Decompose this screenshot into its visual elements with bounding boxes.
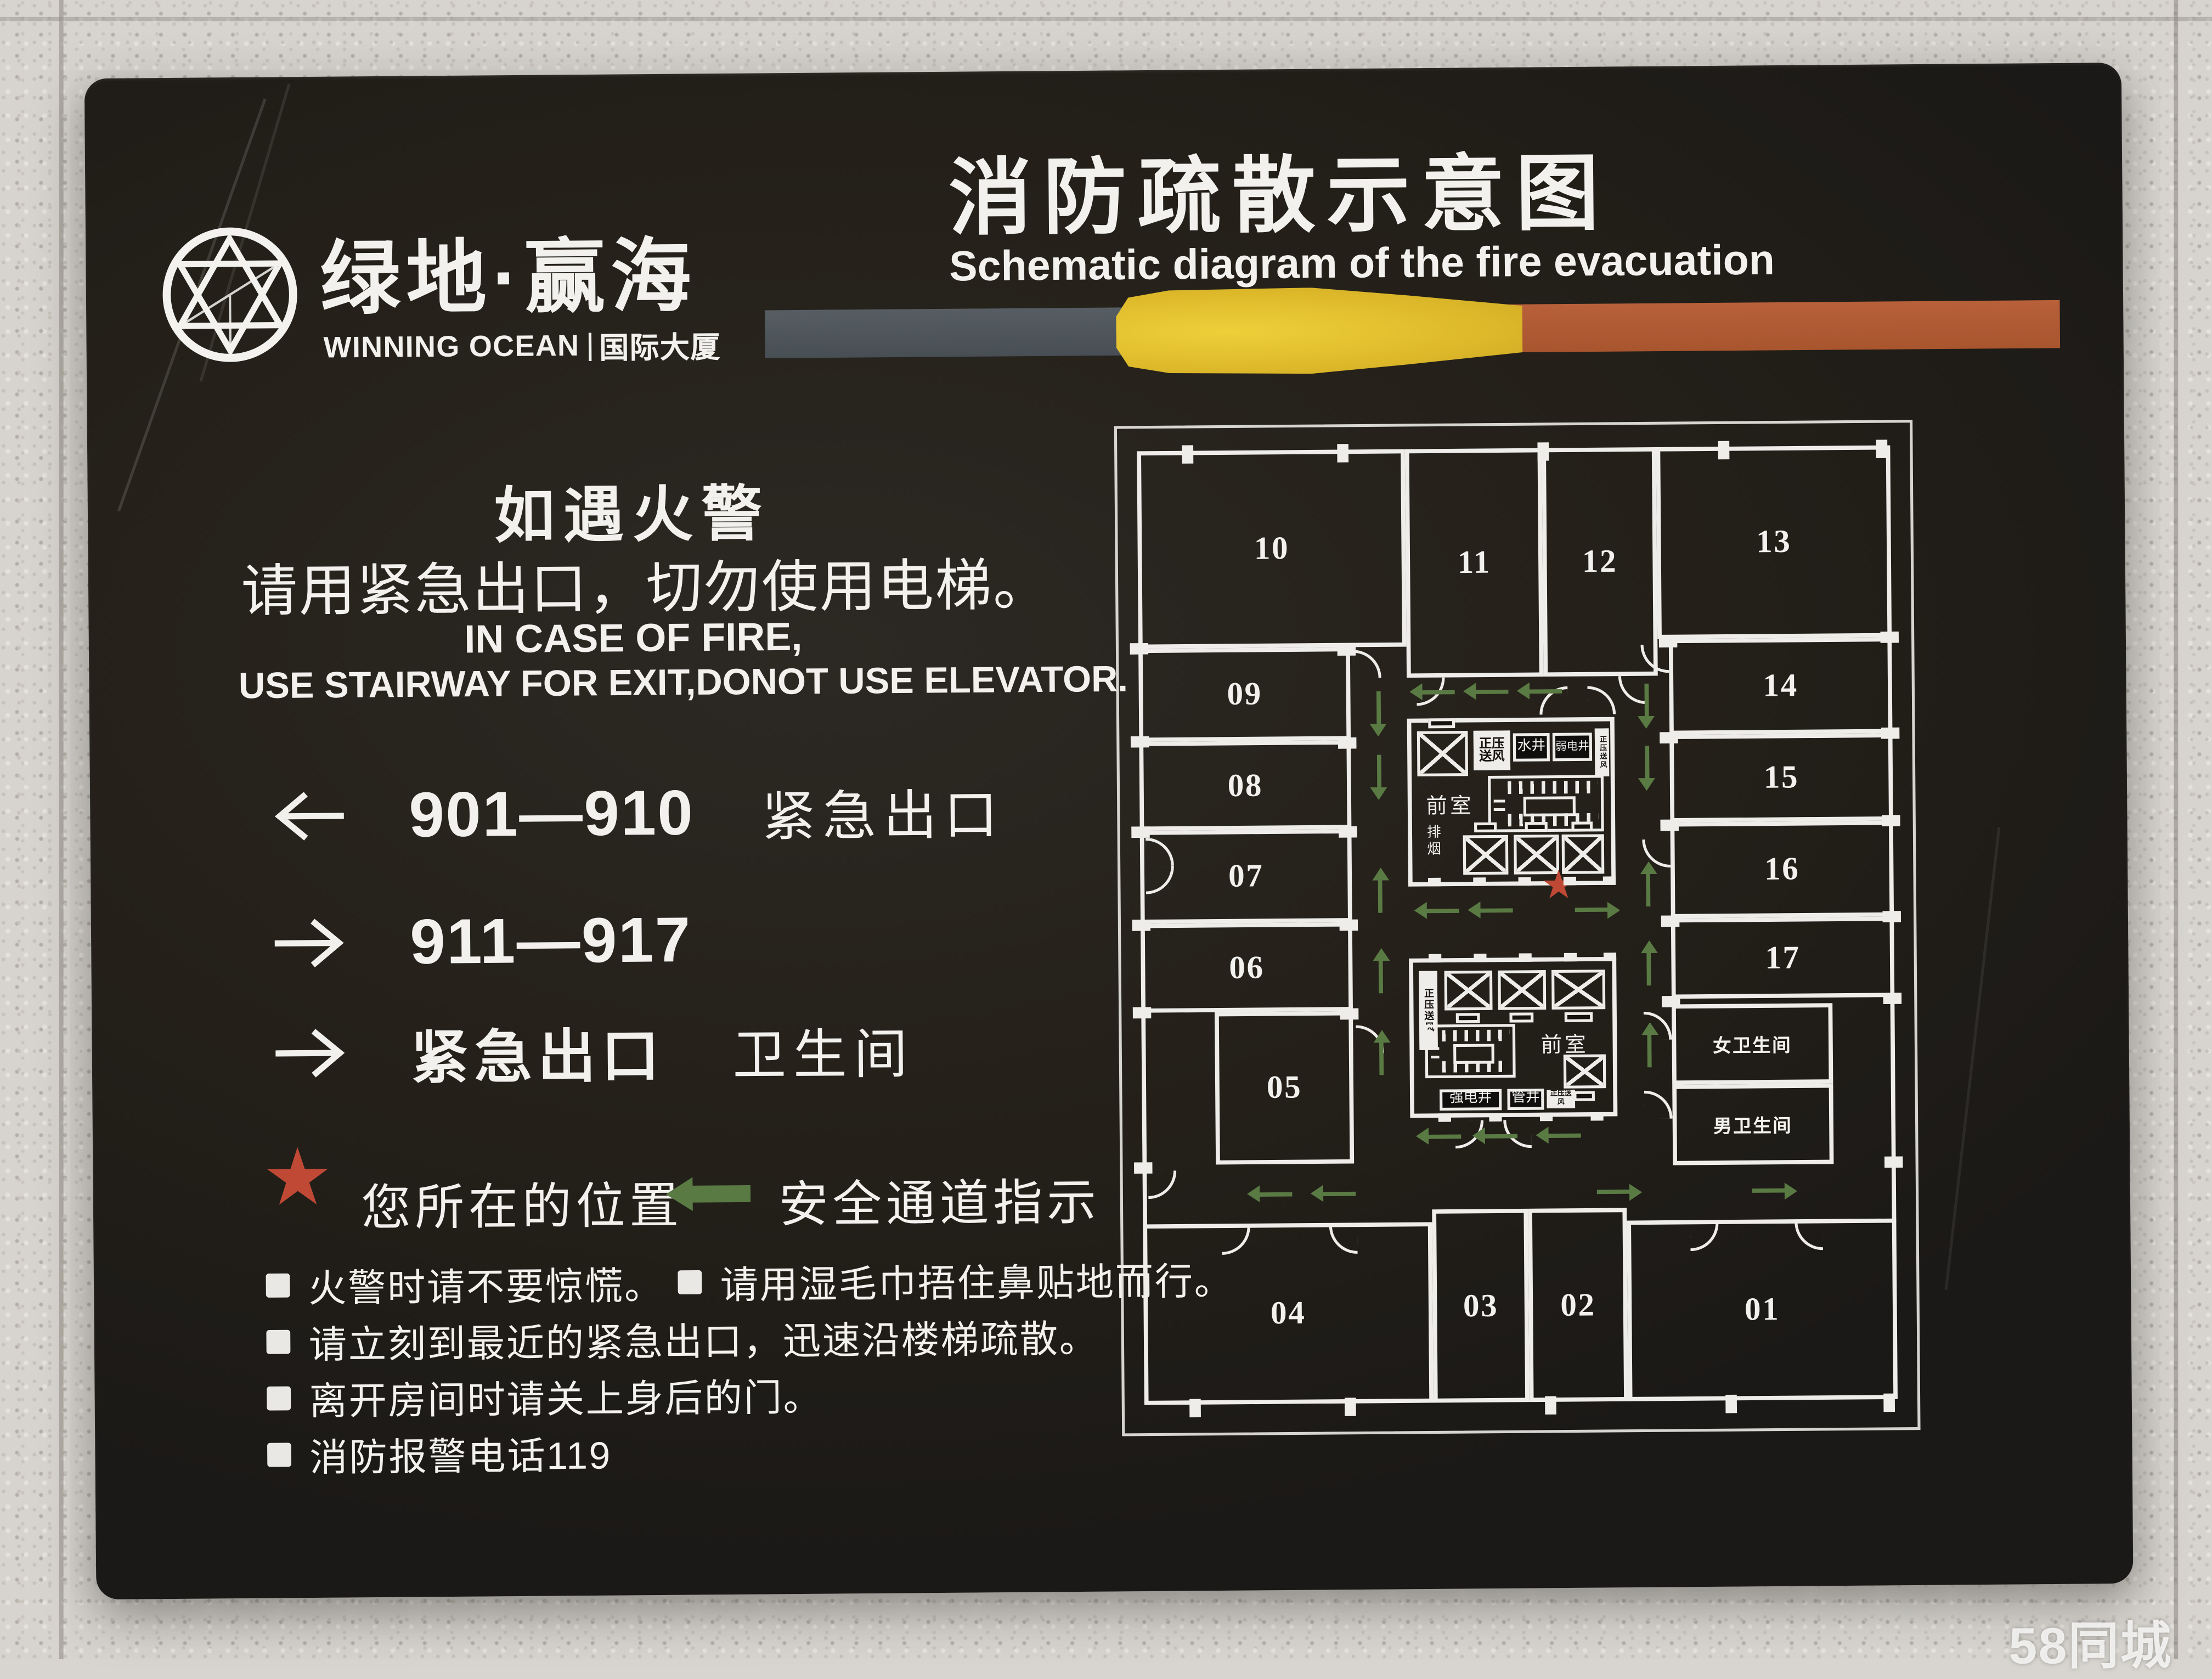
room-wc-men: 男卫生间 — [1672, 1084, 1833, 1165]
sign-title-cn: 消防疏散示意图 — [948, 126, 1611, 251]
column-marker — [1660, 732, 1678, 743]
column-marker — [1660, 820, 1679, 831]
room-number: 02 — [1560, 1287, 1596, 1323]
column-marker — [1661, 915, 1680, 927]
door-frame-tab — [1590, 1112, 1603, 1121]
column-marker — [1882, 815, 1900, 826]
column-marker — [1345, 1398, 1356, 1416]
route-arrow-icon — [1475, 690, 1509, 694]
column-marker — [1130, 643, 1149, 655]
elevator-icon — [1444, 971, 1493, 1011]
fire-notice: 如遇火警 请用紧急出口，切勿使用电梯。 IN CASE OF FIRE, USE… — [253, 71, 1004, 77]
you-are-here-label: 您所在的位置 — [361, 1166, 683, 1241]
room-04: 04 — [1143, 1222, 1434, 1405]
route-arrow-icon — [1376, 691, 1381, 725]
route-arrow-icon — [1646, 872, 1650, 906]
column-marker — [1882, 911, 1901, 922]
wc-label: 卫生间 — [732, 1010, 915, 1089]
route-arrow-icon — [1421, 690, 1455, 695]
room-number: 04 — [1271, 1295, 1306, 1332]
column-marker — [1876, 440, 1888, 458]
safety-tips: 火警时请不要惊慌。 请用湿毛巾捂住鼻贴地而行。 请立刻到最近的紧急出口，迅速沿楼… — [266, 1249, 1249, 1482]
route-arrow-icon — [1646, 951, 1651, 985]
photo-background: 绿地·赢海 WINNING OCEAN 国际大厦 消防疏散示意图 Schemat… — [0, 0, 2212, 1659]
pressure-air-label: 正压送风 — [1474, 730, 1510, 770]
door-frame-tab — [1519, 877, 1531, 886]
room-range: 901—910 — [409, 776, 695, 852]
direction-row-901-910: 901—910 紧急出口 — [268, 771, 1005, 854]
logo-divider — [588, 333, 591, 361]
direction-row-911-917: 911—917 — [269, 903, 760, 981]
room-number: 16 — [1764, 851, 1800, 888]
column-marker — [1339, 826, 1357, 838]
column-marker — [1338, 737, 1357, 749]
stairway-icon — [1425, 1024, 1515, 1078]
room-05: 05 — [1215, 1011, 1354, 1165]
column-marker — [1131, 826, 1150, 838]
service-core-upper: 正压送风 水井 弱电井 正压送风 前室 排烟 — [1407, 717, 1616, 887]
exit-label: 紧急出口 — [410, 1008, 665, 1095]
route-arrow-icon — [1259, 1192, 1293, 1197]
smoke-exhaust-label: 排烟 — [1420, 824, 1442, 875]
left-arrow-icon — [268, 782, 350, 848]
tile-joint — [2174, 0, 2179, 1659]
route-arrow-icon — [1425, 909, 1459, 913]
route-arrow-icon — [1647, 1034, 1651, 1068]
tile-joint — [0, 17, 2212, 21]
room-number: 10 — [1254, 531, 1290, 567]
tip-text: 消防报警电话119 — [309, 1424, 612, 1481]
route-arrow-icon — [1479, 908, 1513, 912]
room-number: 09 — [1227, 676, 1262, 713]
bullet-square-icon — [678, 1270, 702, 1294]
elevator-door-slot — [1456, 1013, 1481, 1023]
elevator-door-slot — [1509, 1012, 1534, 1022]
route-arrow-icon — [1752, 1188, 1786, 1193]
pressure-air-label: 正压送风 — [1595, 728, 1609, 776]
exit-label: 紧急出口 — [761, 771, 1005, 850]
route-arrow-icon — [1378, 879, 1383, 913]
room-number: 08 — [1227, 767, 1263, 804]
column-marker — [1883, 1394, 1895, 1412]
bullet-square-icon — [267, 1442, 291, 1466]
tip-text: 火警时请不要惊慌。 — [308, 1254, 664, 1312]
room-01: 01 — [1627, 1219, 1898, 1401]
photo-watermark: 58同城 — [2009, 1605, 2172, 1679]
notice-en-line1: IN CASE OF FIRE, — [258, 613, 1009, 664]
column-marker — [1337, 444, 1348, 463]
elevator-door-slot — [1574, 1091, 1595, 1101]
column-marker — [1131, 736, 1149, 748]
elevator-icon — [1417, 731, 1468, 776]
room-02: 02 — [1528, 1208, 1628, 1402]
column-marker — [1725, 1395, 1737, 1413]
route-arrow-icon — [1379, 1041, 1384, 1075]
room-wc-women: 女卫生间 — [1672, 1003, 1833, 1085]
decor-bar-gray — [765, 307, 1129, 358]
door-frame-tab — [1438, 1113, 1451, 1122]
room-number: 06 — [1229, 949, 1265, 986]
door-frame-tab — [1604, 953, 1616, 961]
logo-en-suffix: 国际大厦 — [599, 325, 721, 368]
door-frame-tab — [1429, 954, 1441, 963]
door-frame-tab — [1489, 1113, 1502, 1122]
water-shaft-label: 水井 — [1513, 733, 1550, 762]
room-13: 13 — [1656, 446, 1892, 639]
bullet-square-icon — [267, 1385, 291, 1410]
logo-name-cn: 绿地·赢海 — [320, 212, 697, 330]
room-number: 11 — [1457, 544, 1491, 581]
room-03: 03 — [1432, 1209, 1530, 1403]
column-marker — [1718, 441, 1730, 460]
wc-women-label: 女卫生间 — [1713, 1030, 1792, 1058]
door-frame-tab — [1540, 1113, 1553, 1122]
column-marker — [1340, 1008, 1359, 1020]
route-arrow-icon — [1322, 1192, 1356, 1196]
elevator-icon — [1463, 835, 1509, 875]
route-arrow-icon — [1427, 1135, 1461, 1139]
tip-row: 请立刻到最近的紧急出口，迅速沿楼梯疏散。 — [266, 1305, 1248, 1370]
route-arrow-icon — [1483, 1134, 1517, 1139]
logo-name-en: WINNING OCEAN 国际大厦 — [323, 325, 720, 370]
evacuation-route-label: 安全通道指示 — [778, 1163, 1101, 1237]
pipe-shaft-label: 管井 — [1507, 1089, 1544, 1110]
room-range: 911—917 — [410, 904, 692, 979]
route-arrow-icon — [1645, 746, 1649, 780]
tip-row: 消防报警电话119 — [267, 1418, 1249, 1483]
strong-power-shaft-label: 强电井 — [1440, 1089, 1502, 1111]
elevator-door-slot — [1429, 718, 1455, 728]
room-number: 17 — [1765, 939, 1801, 976]
bullet-square-icon — [266, 1273, 290, 1297]
column-marker — [1133, 1007, 1152, 1018]
sign-title-en: Schematic diagram of the fire evacuation — [949, 238, 1775, 292]
tip-row: 火警时请不要惊慌。 请用湿毛巾捂住鼻贴地而行。 — [266, 1249, 1248, 1313]
route-arrow-icon — [1575, 908, 1609, 912]
room-12: 12 — [1542, 447, 1658, 677]
decor-bar-yellow — [1116, 286, 1523, 375]
door-frame-tab — [1564, 877, 1576, 886]
elevator-icon — [1551, 970, 1605, 1010]
door-frame-tab — [1519, 953, 1532, 962]
room-number: 03 — [1463, 1287, 1499, 1324]
column-marker — [1880, 632, 1899, 643]
evacuation-route-arrow-icon — [665, 1177, 753, 1212]
room-number: 07 — [1228, 858, 1264, 895]
room-number: 05 — [1267, 1069, 1302, 1106]
route-arrow-icon — [1379, 959, 1383, 993]
elevator-icon — [1564, 1054, 1606, 1088]
tip-text: 请立刻到最近的紧急出口，迅速沿楼梯疏散。 — [308, 1308, 1099, 1369]
room-17: 17 — [1671, 916, 1894, 999]
door-frame-tab — [1428, 878, 1441, 887]
room-number: 12 — [1582, 543, 1618, 580]
you-are-here-star-icon: ★ — [1541, 865, 1576, 905]
scratch-mark — [1945, 827, 2000, 1289]
elevator-door-slot — [1572, 821, 1593, 831]
elevator-door-slot — [1474, 822, 1497, 832]
column-marker — [1132, 920, 1151, 931]
tile-joint — [59, 0, 64, 1659]
room-number: 14 — [1763, 668, 1798, 705]
route-arrow-icon — [1597, 1190, 1631, 1194]
fire-evacuation-sign: 绿地·赢海 WINNING OCEAN 国际大厦 消防疏散示意图 Schemat… — [84, 63, 2134, 1599]
column-marker — [1545, 1396, 1556, 1415]
route-arrow-icon — [1644, 684, 1649, 718]
column-marker — [1537, 442, 1549, 461]
route-arrow-icon — [1377, 755, 1381, 789]
room-15: 15 — [1669, 733, 1893, 822]
winning-ocean-logo-icon — [159, 224, 301, 366]
room-10: 10 — [1137, 449, 1406, 649]
room-14: 14 — [1669, 637, 1893, 735]
tip-row: 离开房间时请关上身后的门。 — [267, 1362, 1249, 1426]
door-frame-tab — [1473, 877, 1486, 886]
direction-row-exit-wc: 紧急出口 卫生间 — [269, 1006, 915, 1096]
tip-text: 离开房间时请关上身后的门。 — [309, 1366, 823, 1425]
elevator-door-slot — [1525, 822, 1548, 832]
room-number: 01 — [1745, 1292, 1780, 1328]
route-arrow-icon — [1547, 1134, 1581, 1138]
column-marker — [1881, 728, 1900, 739]
room-09: 09 — [1138, 647, 1351, 742]
column-marker — [1340, 920, 1358, 931]
room-06: 06 — [1141, 922, 1353, 1013]
notice-en-line2: USE STAIRWAY FOR EXIT,DONOT USE ELEVATOR… — [239, 658, 1049, 708]
room-11: 11 — [1405, 448, 1544, 678]
elevator-icon — [1498, 970, 1546, 1010]
column-marker — [1883, 993, 1902, 1004]
elevator-door-slot — [1564, 1012, 1592, 1022]
door-frame-tab — [1603, 876, 1616, 885]
pressure-air-label: 正压送风 — [1547, 1090, 1575, 1108]
room-number: 13 — [1756, 523, 1792, 560]
room-16: 16 — [1670, 821, 1894, 919]
service-core-lower: 正压送风 前室 强电井 管井 正压送风 — [1409, 957, 1617, 1118]
column-marker — [1182, 445, 1193, 464]
door-frame-tab — [1474, 954, 1486, 962]
room-08: 08 — [1139, 740, 1351, 831]
route-arrow-icon — [1528, 689, 1562, 694]
column-marker — [1662, 996, 1680, 1007]
wc-men-label: 男卫生间 — [1713, 1111, 1792, 1138]
you-are-here-star-icon: ★ — [262, 1137, 333, 1217]
decor-bar-orange — [1506, 300, 2060, 352]
door-frame-tab — [1564, 953, 1577, 962]
bullet-square-icon — [266, 1329, 290, 1353]
column-marker — [1884, 1156, 1903, 1168]
front-room-label: 前室 — [1426, 790, 1474, 820]
floor-plan: 10 11 12 13 09 08 07 06 05 14 15 16 17 女… — [1125, 431, 1909, 1425]
logo-en-text: WINNING OCEAN — [323, 330, 579, 366]
right-arrow-icon — [269, 1021, 352, 1086]
weak-power-shaft-label: 弱电井 — [1553, 733, 1592, 761]
right-arrow-icon — [269, 910, 351, 976]
column-marker — [1189, 1399, 1201, 1418]
room-number: 15 — [1764, 759, 1799, 796]
